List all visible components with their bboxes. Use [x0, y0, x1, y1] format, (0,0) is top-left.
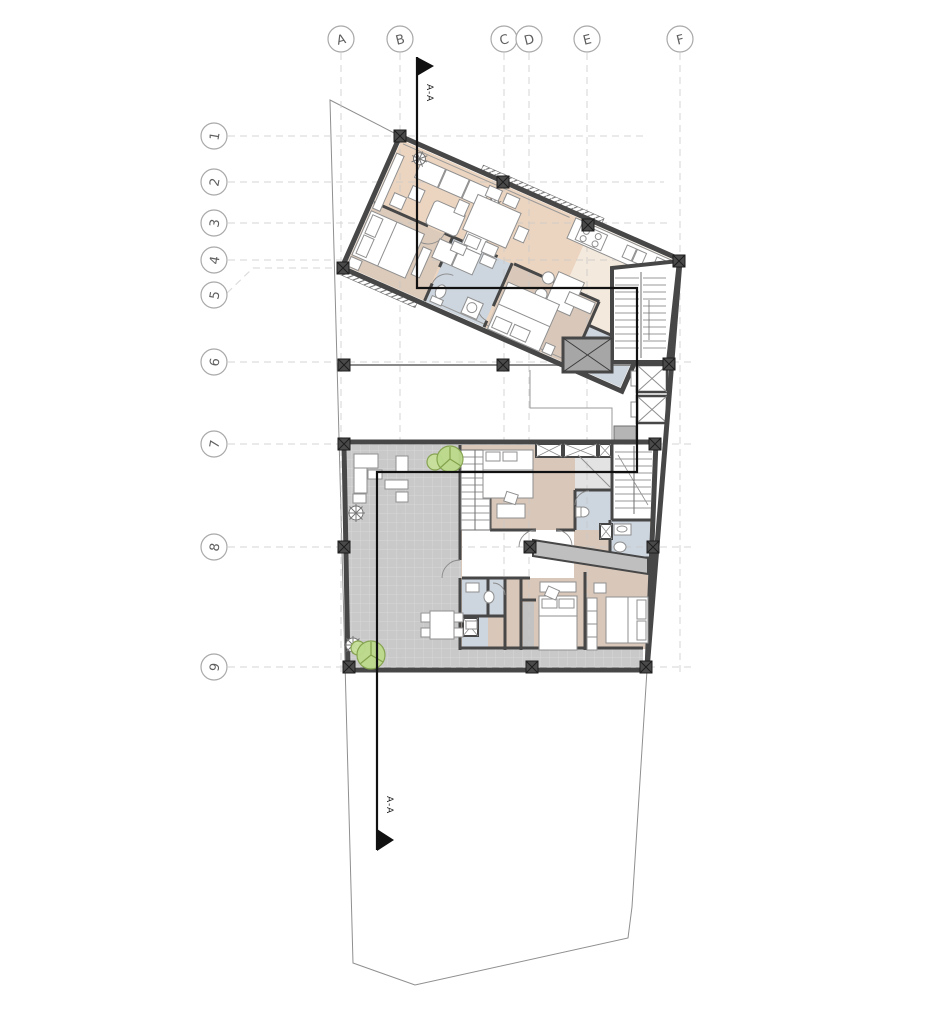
lower-bedroom-center — [539, 582, 577, 650]
toilet — [484, 591, 494, 603]
sink — [466, 583, 479, 592]
sink — [466, 621, 477, 629]
section-label-bottom: A-A — [384, 796, 394, 814]
toilet — [614, 542, 626, 552]
section-label-top: A-A — [424, 84, 434, 102]
section-flag-top — [417, 57, 434, 76]
floor-plan-page: A-A A-A A B C D E F 1 2 3 4 5 — [0, 0, 931, 1030]
section-flag-bottom — [377, 829, 394, 851]
armchair — [594, 583, 606, 593]
column-bubbles — [328, 26, 693, 52]
stairwell-upper — [612, 261, 679, 362]
terrace-table — [430, 611, 454, 639]
floor-plan-drawing: A-A A-A A B C D E F 1 2 3 4 5 — [0, 0, 931, 1030]
desk — [497, 504, 525, 518]
row-bubbles — [201, 123, 227, 680]
grid-row-5 — [227, 268, 345, 293]
